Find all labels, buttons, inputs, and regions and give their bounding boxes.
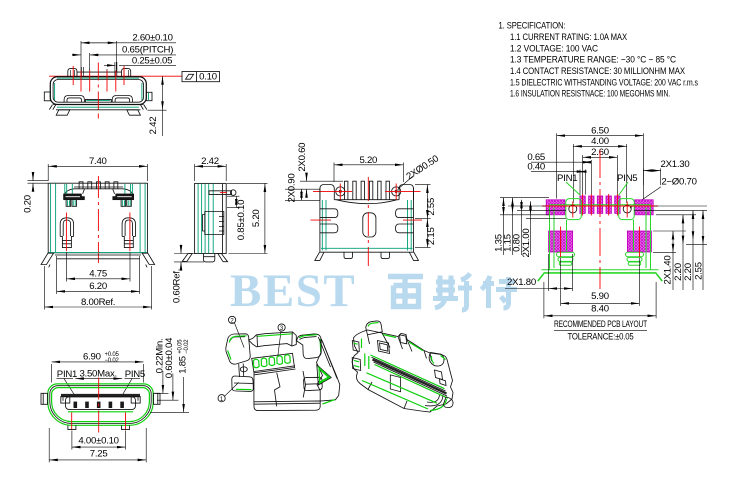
svg-text:2X0.90: 2X0.90	[286, 174, 297, 203]
svg-text:4.00: 4.00	[591, 136, 609, 147]
svg-text:1.1 CURRENT RATING: 1.0A MAX: 1.1 CURRENT RATING: 1.0A MAX	[510, 31, 628, 42]
svg-text:PIN1: PIN1	[557, 173, 577, 184]
svg-text:2.60±0.10: 2.60±0.10	[132, 33, 172, 44]
svg-text:BEST: BEST	[230, 265, 356, 317]
svg-text:2XØ0.50: 2XØ0.50	[404, 153, 440, 182]
svg-text:3: 3	[280, 326, 284, 332]
svg-text:0.60±0.04: 0.60±0.04	[164, 337, 175, 378]
svg-text:0.40: 0.40	[527, 161, 545, 172]
svg-text:5.20: 5.20	[359, 155, 377, 166]
svg-text:4.00±0.10: 4.00±0.10	[78, 435, 118, 446]
svg-text:7.25: 7.25	[90, 449, 108, 460]
svg-text:1.5 DIELECTRIC WITHSTANDING VO: 1.5 DIELECTRIC WITHSTANDING VOLTAGE: 200…	[510, 76, 698, 87]
svg-text:−0.02: −0.02	[105, 358, 120, 364]
svg-text:+0.05: +0.05	[178, 339, 184, 354]
svg-text:PIN5: PIN5	[617, 173, 637, 184]
svg-text:4.75: 4.75	[89, 269, 107, 280]
svg-text:1. SPECIFICATION:: 1. SPECIFICATION:	[499, 20, 566, 31]
svg-text:7.40: 7.40	[89, 156, 107, 167]
svg-text:2.55: 2.55	[426, 198, 437, 216]
svg-text:2.42: 2.42	[201, 156, 219, 167]
svg-text:1.4 CONTACT RESISTANCE: 30 MIL: 1.4 CONTACT RESISTANCE: 30 MILLIONHM MAX	[510, 65, 686, 76]
svg-text:1.2 VOLTAGE: 100 VAC: 1.2 VOLTAGE: 100 VAC	[510, 42, 598, 53]
svg-text:1: 1	[220, 397, 224, 403]
svg-text:2: 2	[230, 319, 234, 325]
svg-text:0.25±0.05: 0.25±0.05	[132, 56, 172, 67]
svg-text:6.20: 6.20	[89, 281, 107, 292]
svg-text:6.50: 6.50	[591, 125, 609, 136]
svg-text:0.85±0.10: 0.85±0.10	[236, 200, 247, 240]
svg-text:2X0.60: 2X0.60	[297, 143, 308, 172]
svg-text:1.3 TEMPERATURE RANGE: −30 °C: 1.3 TEMPERATURE RANGE: −30 °C ~ 85 °C	[510, 54, 676, 65]
svg-text:0.10: 0.10	[199, 72, 217, 83]
svg-text:2.42: 2.42	[148, 117, 159, 135]
svg-text:TOLERANCE:±0.05: TOLERANCE:±0.05	[568, 332, 634, 343]
svg-text:RECOMMENDED PCB LAYOUT: RECOMMENDED PCB LAYOUT	[554, 319, 647, 330]
svg-text:0.65(PITCH): 0.65(PITCH)	[122, 45, 173, 56]
svg-text:+0.05: +0.05	[105, 352, 120, 358]
svg-text:1.85: 1.85	[177, 356, 188, 374]
svg-text:8.40: 8.40	[591, 303, 609, 314]
svg-text:6.90: 6.90	[83, 352, 101, 363]
svg-text:2.15: 2.15	[426, 227, 437, 245]
svg-text:3.50Max.: 3.50Max.	[79, 369, 116, 380]
svg-text:5.90: 5.90	[591, 291, 609, 302]
svg-text:−0.02: −0.02	[184, 339, 190, 354]
svg-text:0.60Ref.: 0.60Ref.	[172, 269, 183, 303]
svg-text:5.20: 5.20	[251, 209, 262, 227]
svg-text:2X1.80: 2X1.80	[507, 277, 536, 288]
svg-text:1.6 INSULATION RESISTNACE: 100: 1.6 INSULATION RESISTNACE: 100 MEGOHMS M…	[510, 88, 670, 99]
svg-text:2.55: 2.55	[694, 262, 705, 280]
svg-text:0.20: 0.20	[22, 195, 33, 213]
svg-text:2−Ø0.70: 2−Ø0.70	[661, 177, 696, 188]
svg-text:2X1.30: 2X1.30	[661, 159, 690, 170]
svg-text:2X1.00: 2X1.00	[521, 229, 532, 258]
svg-text:8.00Ref.: 8.00Ref.	[81, 297, 115, 308]
